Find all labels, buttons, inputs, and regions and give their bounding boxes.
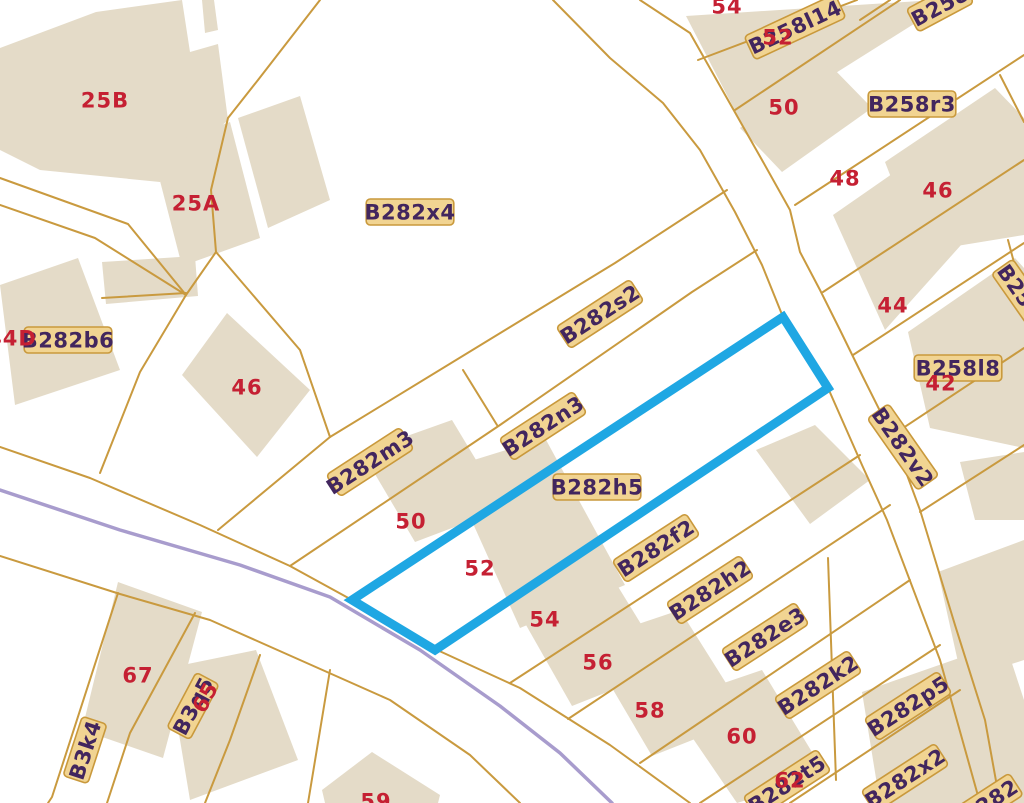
parcel-boundary-line <box>463 370 497 425</box>
parcel-label[interactable]: B282h2 <box>664 554 756 626</box>
parcel-label-text: B282h2 <box>665 555 756 625</box>
house-number: 50 <box>768 96 799 120</box>
parcel-label-text: B282k2 <box>773 651 863 721</box>
parcel-label-text: B282h5 <box>551 476 643 500</box>
house-number: 54 <box>711 0 742 19</box>
house-number: 67 <box>122 664 153 688</box>
parcel-label[interactable]: B282e3 <box>719 601 810 673</box>
map-viewport: B282x4B282s2B282n3B282m3B282h5B282f2B282… <box>0 0 1024 803</box>
house-number: 62 <box>774 769 805 793</box>
parcel-label-text: B258 <box>907 0 973 32</box>
house-number: 44D <box>0 327 37 351</box>
parcel-label[interactable]: B282x4 <box>365 199 456 225</box>
building-footprint <box>756 425 870 524</box>
house-number: 52 <box>464 557 495 581</box>
house-number: 48 <box>829 167 860 191</box>
house-number: 60 <box>726 725 757 749</box>
house-number: 59 <box>360 790 391 803</box>
parcel-boundary-line <box>308 670 330 803</box>
parcel-label-text: B258r3 <box>868 93 956 117</box>
parcel-label-text: B282x4 <box>365 201 456 225</box>
parcel-label[interactable]: B282s2 <box>555 279 645 350</box>
parcel-label[interactable]: B258r3 <box>868 91 956 117</box>
parcel-label[interactable]: B282k2 <box>773 649 864 721</box>
building-footprint <box>202 0 218 33</box>
parcel-label[interactable]: B282h5 <box>551 474 643 500</box>
house-number: 25B <box>81 89 129 113</box>
parcel-label[interactable]: B258 <box>906 0 973 32</box>
parcel-label-text: B282e3 <box>720 602 810 672</box>
house-number: 52 <box>762 26 793 50</box>
house-number: 50 <box>395 510 426 534</box>
house-number: 46 <box>922 179 953 203</box>
house-number: 25A <box>172 192 220 216</box>
house-number: 58 <box>634 699 665 723</box>
house-number: 42 <box>925 372 956 396</box>
house-number: 54 <box>529 608 560 632</box>
house-number: 46 <box>231 376 262 400</box>
house-number: 56 <box>582 651 613 675</box>
house-number: 44 <box>877 294 908 318</box>
cadastral-map[interactable]: B282x4B282s2B282n3B282m3B282h5B282f2B282… <box>0 0 1024 803</box>
building-footprint <box>960 452 1024 520</box>
parcel-label[interactable]: B3k4 <box>63 716 107 783</box>
